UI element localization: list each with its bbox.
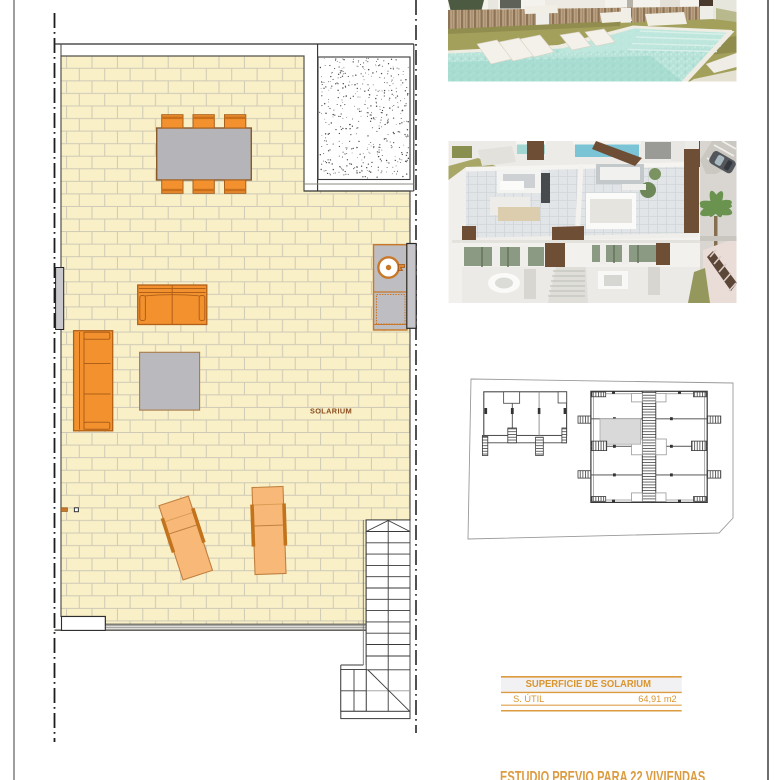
svg-text:SUPERFICIE DE SOLARIUM: SUPERFICIE DE SOLARIUM (526, 679, 651, 690)
svg-text:S. ÚTIL: S. ÚTIL (513, 694, 544, 704)
svg-text:ESTUDIO PREVIO PARA 22 VIVIEND: ESTUDIO PREVIO PARA 22 VIVIENDAS (500, 769, 706, 780)
svg-text:64,91 m2: 64,91 m2 (638, 694, 676, 704)
svg-text:SOLARIUM: SOLARIUM (310, 407, 352, 416)
